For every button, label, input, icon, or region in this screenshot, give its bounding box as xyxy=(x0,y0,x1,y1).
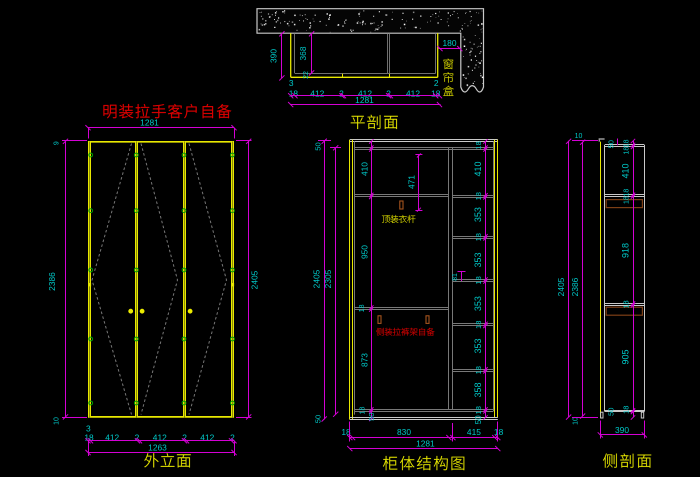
svg-text:412: 412 xyxy=(406,88,420,98)
svg-text:412: 412 xyxy=(310,88,324,98)
svg-text:1263: 1263 xyxy=(148,442,167,452)
svg-text:18: 18 xyxy=(621,406,630,414)
svg-text:50: 50 xyxy=(607,140,616,148)
svg-text:353: 353 xyxy=(473,252,483,267)
svg-text:1281: 1281 xyxy=(355,95,374,105)
svg-text:1281: 1281 xyxy=(416,438,435,448)
svg-text:873: 873 xyxy=(360,353,370,367)
svg-text:2405: 2405 xyxy=(556,277,566,296)
svg-text:368: 368 xyxy=(298,46,308,60)
svg-text:18: 18 xyxy=(474,141,483,149)
svg-text:353: 353 xyxy=(473,207,483,222)
svg-text:18: 18 xyxy=(474,406,483,414)
svg-text:50: 50 xyxy=(313,142,322,150)
svg-text:3: 3 xyxy=(289,78,294,88)
svg-text:390: 390 xyxy=(615,425,629,435)
svg-text:18: 18 xyxy=(474,233,483,241)
svg-text:830: 830 xyxy=(397,427,411,437)
svg-text:50: 50 xyxy=(607,408,616,416)
svg-text:353: 353 xyxy=(473,296,483,311)
svg-text:410: 410 xyxy=(360,162,370,176)
svg-text:2: 2 xyxy=(434,78,439,88)
svg-text:9: 9 xyxy=(54,141,61,145)
svg-text:471: 471 xyxy=(407,175,417,189)
svg-text:918: 918 xyxy=(620,243,630,258)
svg-text:18: 18 xyxy=(623,147,630,155)
svg-text:18: 18 xyxy=(474,276,483,284)
svg-text:18: 18 xyxy=(359,304,366,312)
svg-text:950: 950 xyxy=(360,245,370,259)
svg-text:10: 10 xyxy=(575,133,583,140)
svg-text:50: 50 xyxy=(474,415,483,424)
svg-text:10: 10 xyxy=(573,417,580,425)
svg-text:410: 410 xyxy=(473,161,483,176)
svg-text:2405: 2405 xyxy=(312,269,322,288)
svg-text:18: 18 xyxy=(623,196,630,204)
svg-text:18: 18 xyxy=(623,189,630,197)
svg-text:18: 18 xyxy=(621,300,630,308)
svg-text:2405: 2405 xyxy=(250,270,260,289)
svg-text:410: 410 xyxy=(620,163,630,178)
svg-text:18: 18 xyxy=(623,139,630,147)
svg-text:18: 18 xyxy=(289,88,299,98)
svg-text:10: 10 xyxy=(54,417,61,425)
svg-text:390: 390 xyxy=(269,49,279,63)
svg-text:2386: 2386 xyxy=(570,277,580,296)
svg-text:2305: 2305 xyxy=(323,269,333,288)
svg-text:50: 50 xyxy=(313,415,322,423)
svg-text:2386: 2386 xyxy=(47,272,57,291)
svg-text:18: 18 xyxy=(360,407,367,415)
svg-text:50: 50 xyxy=(367,413,376,421)
svg-text:358: 358 xyxy=(473,382,483,397)
svg-text:18: 18 xyxy=(474,366,483,374)
svg-text:81: 81 xyxy=(452,273,459,281)
svg-text:18: 18 xyxy=(474,192,483,200)
svg-text:415: 415 xyxy=(467,427,481,437)
svg-text:905: 905 xyxy=(620,349,630,364)
svg-text:180: 180 xyxy=(443,38,457,48)
svg-text:22: 22 xyxy=(303,71,310,79)
svg-text:18: 18 xyxy=(431,88,441,98)
svg-text:353: 353 xyxy=(473,338,483,353)
svg-text:18: 18 xyxy=(474,321,483,329)
svg-text:1281: 1281 xyxy=(140,118,159,128)
